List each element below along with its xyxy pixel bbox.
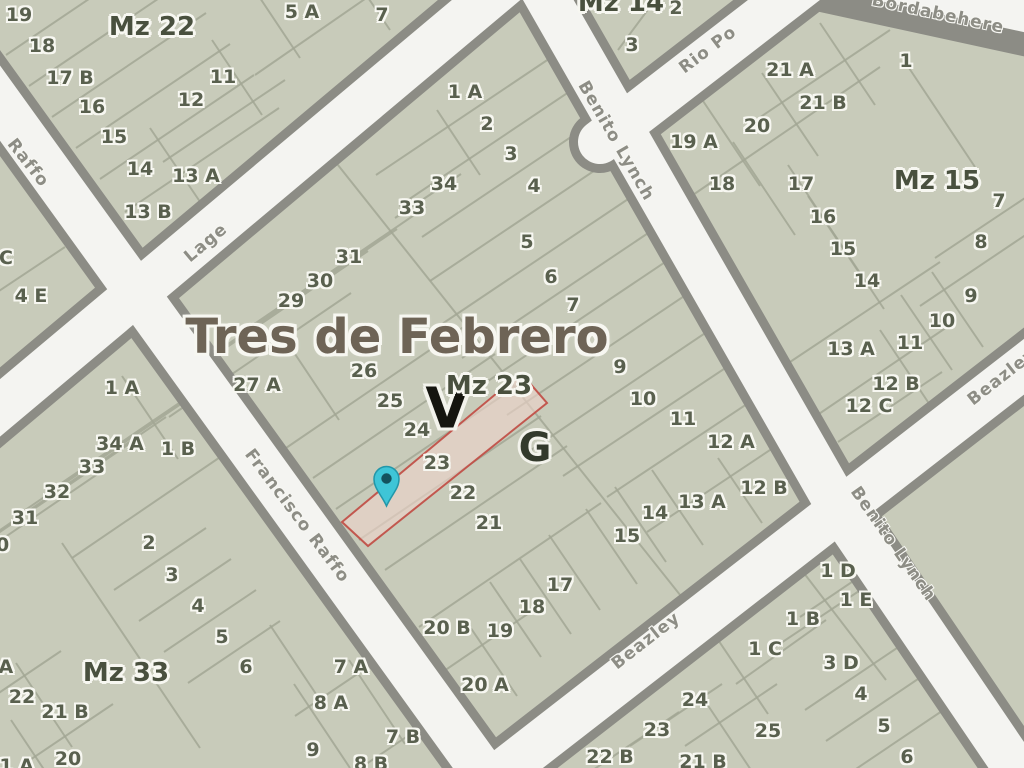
lot-label: 33 <box>79 456 105 478</box>
lot-label: 10 <box>929 310 955 332</box>
lot-label: 2 <box>142 532 155 554</box>
lot-label: 21 <box>476 512 502 534</box>
lot-label: 13 A <box>678 491 726 513</box>
lot-label: 21 A <box>766 59 814 81</box>
manzana-label: Mz 14 <box>578 0 664 18</box>
lot-label: 20 A <box>461 674 509 696</box>
manzana-label: Mz 33 <box>83 658 169 688</box>
lot-label: 7 A <box>334 656 369 678</box>
lot-label: 9 <box>306 739 319 761</box>
lot-label: 17 <box>788 173 814 195</box>
lot-label: 33 <box>399 197 425 219</box>
manzana-label: Mz 15 <box>894 166 980 196</box>
lot-label: 3 A <box>0 656 13 678</box>
map-title: Tres de Febrero <box>185 309 608 365</box>
lot-label: 7 B <box>386 726 420 748</box>
lot-label: 6 <box>239 656 252 678</box>
lot-label: 1 C <box>0 247 13 269</box>
lot-label: 18 <box>519 596 545 618</box>
lot-label: 7 <box>992 190 1005 212</box>
lot-label: 24 <box>682 689 708 711</box>
lot-label: 34 <box>431 173 457 195</box>
lot-label: 30 <box>0 534 9 556</box>
overlay-letter-g: G <box>519 425 552 471</box>
lot-label: 9 <box>613 356 626 378</box>
lot-label: 13 B <box>124 201 172 223</box>
lot-label: 25 <box>377 390 403 412</box>
map-canvas[interactable]: Tres de Febrero V G 191817 B16151413 A13… <box>0 0 1024 768</box>
lot-label: 5 <box>520 231 533 253</box>
lot-label: 2 <box>669 0 682 19</box>
lot-label: 12 <box>178 89 204 111</box>
lot-label: 15 <box>101 126 127 148</box>
lot-label: 20 <box>55 748 81 768</box>
lot-label: 22 <box>9 686 35 708</box>
lot-label: 12 C <box>846 395 893 417</box>
lot-label: 16 <box>810 206 836 228</box>
lot-label: 12 B <box>740 477 788 499</box>
lot-label: 15 <box>614 525 640 547</box>
lot-label: 21 B <box>41 701 89 723</box>
lot-label: 27 A <box>233 374 281 396</box>
lot-label: 18 <box>709 173 735 195</box>
lot-label: 9 <box>964 285 977 307</box>
lot-label: 30 <box>307 270 333 292</box>
lot-label: 20 <box>744 115 770 137</box>
lot-label: 10 <box>630 388 656 410</box>
lot-label: 21 A <box>0 755 34 768</box>
lot-label: 26 <box>351 360 377 382</box>
lot-label: 23 <box>644 719 670 741</box>
lot-label: 14 <box>127 158 153 180</box>
lot-label: 1 D <box>820 560 856 582</box>
lot-label: 24 <box>404 419 430 441</box>
lot-label: 21 B <box>679 751 727 768</box>
lot-label: 17 B <box>46 67 94 89</box>
lot-label: 15 <box>830 238 856 260</box>
lot-label: 25 <box>755 720 781 742</box>
lot-label: 11 <box>210 66 236 88</box>
lot-label: 19 <box>487 620 513 642</box>
lot-label: 12 A <box>707 431 755 453</box>
lot-label: 3 D <box>823 652 859 674</box>
lot-label: 7 <box>566 294 579 316</box>
lot-label: 22 <box>450 482 476 504</box>
lot-label: 6 <box>900 746 913 768</box>
lot-label: 31 <box>12 507 38 529</box>
lot-label: 1 A <box>105 377 140 399</box>
lot-label: 19 <box>6 4 32 26</box>
lot-label: 1 <box>899 50 912 72</box>
lot-label: 1 B <box>161 438 195 460</box>
lot-label: 16 <box>79 96 105 118</box>
lot-label: 1 E <box>840 589 873 611</box>
lot-label: 11 <box>897 332 923 354</box>
lot-label: 2 <box>480 113 493 135</box>
lot-label: 5 <box>877 715 890 737</box>
lot-label: 4 <box>191 595 204 617</box>
lot-label: 1 B <box>786 608 820 630</box>
lot-label: 22 B <box>586 746 634 768</box>
lot-label: 14 <box>642 502 668 524</box>
lot-label: 7 <box>375 4 388 26</box>
lot-label: 8 A <box>314 692 349 714</box>
lot-label: 20 B <box>423 617 471 639</box>
lot-label: 32 <box>44 481 70 503</box>
lot-label: 1 C <box>748 638 782 660</box>
lot-label: 18 <box>29 35 55 57</box>
lot-label: 17 <box>547 574 573 596</box>
lot-label: 4 <box>854 683 867 705</box>
lot-label: 5 A <box>285 1 320 23</box>
lot-label: 13 A <box>827 338 875 360</box>
lot-label: 4 <box>527 175 540 197</box>
lot-label: 14 <box>854 270 880 292</box>
lot-label: 3 <box>504 143 517 165</box>
lot-label: 12 B <box>872 373 920 395</box>
lot-label: 11 <box>670 408 696 430</box>
lot-label: 4 E <box>15 285 48 307</box>
lot-label: 21 B <box>799 92 847 114</box>
lot-label: 23 <box>424 452 450 474</box>
lot-label: 31 <box>336 246 362 268</box>
lot-label: 3 <box>625 34 638 56</box>
lot-label: 19 A <box>670 131 718 153</box>
manzana-label: Mz 23 <box>446 371 532 401</box>
lot-label: 29 <box>278 290 304 312</box>
lot-label: 1 A <box>448 81 483 103</box>
lot-label: 5 <box>215 626 228 648</box>
lot-label: 13 A <box>172 165 220 187</box>
manzana-label: Mz 22 <box>109 12 195 42</box>
lot-label: 3 <box>165 564 178 586</box>
lot-label: 8 B <box>354 753 388 768</box>
lot-label: 34 A <box>96 433 144 455</box>
lot-label: 8 <box>974 231 987 253</box>
lot-label: 6 <box>544 266 557 288</box>
